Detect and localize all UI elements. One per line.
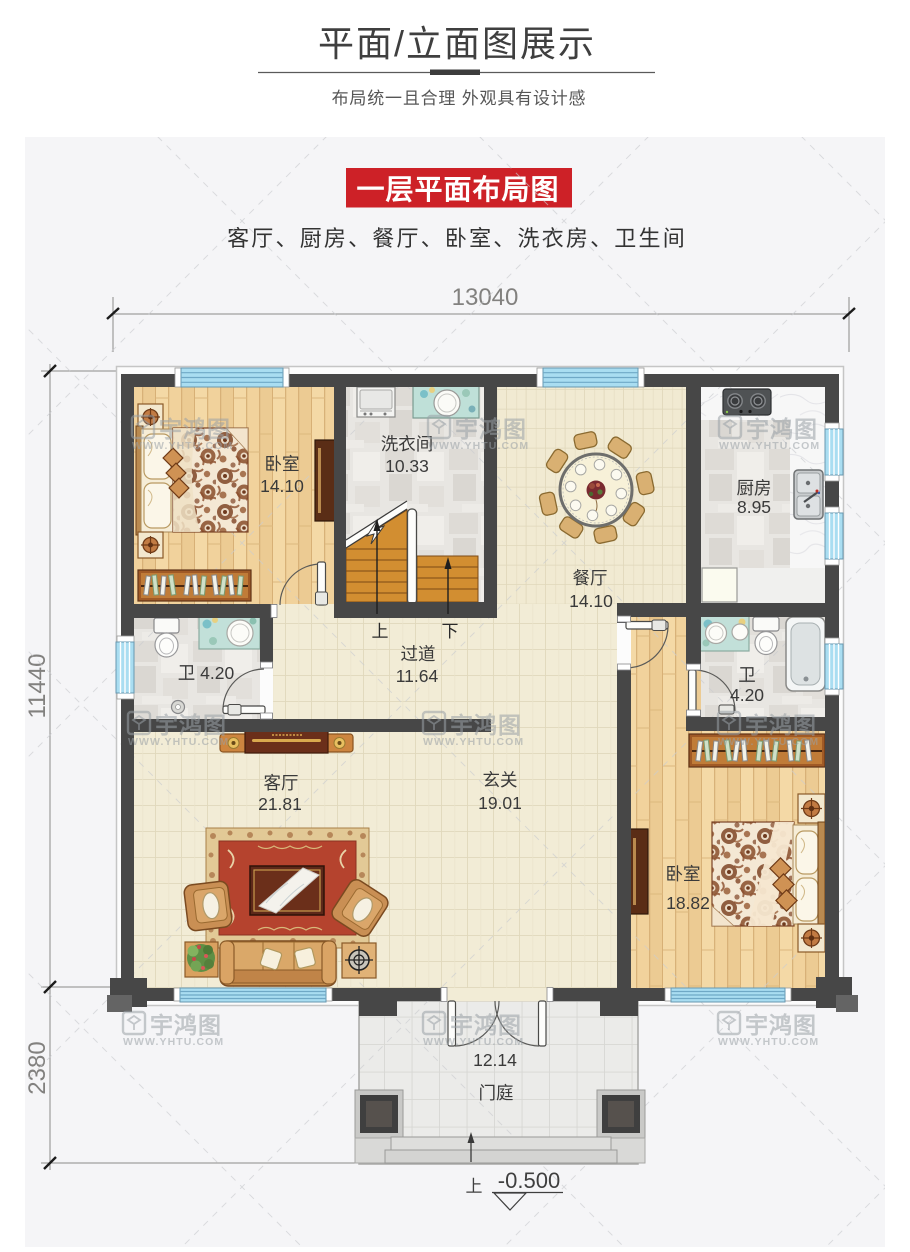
svg-text:WWW.YHTU.COM: WWW.YHTU.COM: [423, 1036, 524, 1048]
svg-text:WWW.YHTU.COM: WWW.YHTU.COM: [718, 736, 819, 748]
svg-text:21.81: 21.81: [258, 794, 302, 814]
svg-text:4.20: 4.20: [730, 685, 764, 705]
svg-text:卫: 卫: [738, 665, 756, 685]
svg-text:WWW.YHTU.COM: WWW.YHTU.COM: [423, 736, 524, 748]
svg-text:布局统一且合理 外观具有设计感: 布局统一且合理 外观具有设计感: [332, 89, 587, 108]
svg-text:WWW.YHTU.COM: WWW.YHTU.COM: [128, 736, 229, 748]
svg-text:10.33: 10.33: [385, 456, 429, 476]
svg-text:8.95: 8.95: [737, 497, 771, 517]
svg-text:18.82: 18.82: [666, 893, 710, 913]
svg-text:餐厅: 餐厅: [573, 568, 608, 588]
svg-text:卫 4.20: 卫 4.20: [178, 663, 235, 683]
svg-text:宇鸿图: 宇鸿图: [155, 712, 227, 738]
svg-text:14.10: 14.10: [260, 476, 304, 496]
svg-text:11440: 11440: [24, 654, 51, 719]
svg-text:WWW.YHTU.COM: WWW.YHTU.COM: [123, 1036, 224, 1048]
svg-text:宇鸿图: 宇鸿图: [745, 1012, 817, 1038]
svg-text:玄关: 玄关: [483, 770, 518, 790]
svg-text:12.14: 12.14: [473, 1050, 517, 1070]
svg-text:19.01: 19.01: [478, 793, 522, 813]
svg-text:上: 上: [372, 622, 389, 641]
svg-text:洗衣间: 洗衣间: [381, 434, 434, 454]
svg-text:一层平面布局图: 一层平面布局图: [356, 174, 559, 205]
svg-text:平面/立面图展示: 平面/立面图展示: [318, 23, 596, 64]
svg-text:宇鸿图: 宇鸿图: [450, 712, 522, 738]
svg-text:WWW.YHTU.COM: WWW.YHTU.COM: [132, 440, 233, 452]
svg-text:11.64: 11.64: [396, 666, 439, 686]
svg-text:-0.500: -0.500: [498, 1168, 560, 1193]
svg-text:WWW.YHTU.COM: WWW.YHTU.COM: [719, 440, 820, 452]
svg-text:宇鸿图: 宇鸿图: [150, 1012, 222, 1038]
svg-text:14.10: 14.10: [569, 591, 613, 611]
svg-text:宇鸿图: 宇鸿图: [450, 1012, 522, 1038]
svg-text:卧室: 卧室: [666, 864, 701, 884]
svg-text:客厅、厨房、餐厅、卧室、洗衣房、卫生间: 客厅、厨房、餐厅、卧室、洗衣房、卫生间: [227, 226, 687, 251]
svg-text:2380: 2380: [24, 1041, 51, 1094]
svg-text:厨房: 厨房: [737, 478, 772, 498]
svg-text:卧室: 卧室: [265, 454, 300, 474]
svg-text:13040: 13040: [452, 284, 519, 311]
svg-text:上: 上: [466, 1177, 483, 1196]
svg-text:客厅: 客厅: [264, 773, 299, 793]
svg-text:过道: 过道: [401, 644, 436, 664]
svg-text:WWW.YHTU.COM: WWW.YHTU.COM: [718, 1036, 819, 1048]
svg-text:宇鸿图: 宇鸿图: [746, 416, 818, 442]
svg-text:宇鸿图: 宇鸿图: [159, 416, 231, 442]
svg-text:宇鸿图: 宇鸿图: [745, 712, 817, 738]
svg-text:宇鸿图: 宇鸿图: [455, 416, 527, 442]
svg-text:门庭: 门庭: [479, 1083, 514, 1103]
svg-text:WWW.YHTU.COM: WWW.YHTU.COM: [428, 440, 529, 452]
svg-text:下: 下: [442, 622, 459, 641]
